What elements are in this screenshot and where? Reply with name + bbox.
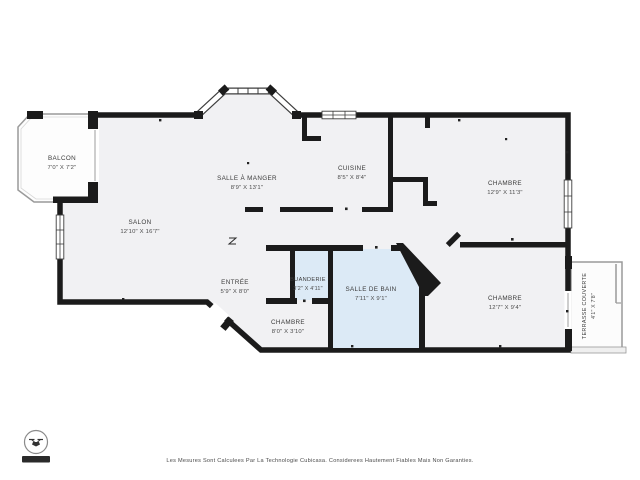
room-dims-chambre-2: 8'0" X 3'10" xyxy=(272,329,304,335)
room-dims-chambre-3: 12'7" X 9'4" xyxy=(489,305,521,311)
room-label-salle-de-bain: SALLE DE BAIN xyxy=(345,286,396,293)
window-top-wall xyxy=(322,111,356,119)
room-dims-balcon: 7'0" X 7'2" xyxy=(48,165,77,171)
room-dims-salon: 12'10" X 16'7" xyxy=(120,229,159,235)
room-dims-salle-a-manger: 8'9" X 13'1" xyxy=(231,185,263,191)
room-label-cuisine: CUISINE xyxy=(338,165,366,172)
disclaimer-text: Les Mesures Sont Calculees Par La Techno… xyxy=(0,458,640,464)
room-label-salle-a-manger: SALLE À MANGER xyxy=(217,173,277,182)
room-label-chambre-2: CHAMBRE xyxy=(271,319,305,326)
room-dims-cuisine: 8'5" X 8'4" xyxy=(338,175,367,181)
terrace-outline xyxy=(571,262,626,353)
window-left-wall xyxy=(56,215,64,259)
room-dims-salle-de-bain: 7'11" X 9'1" xyxy=(355,296,387,302)
room-label-entree: ENTRÉE xyxy=(221,277,249,286)
floorplan-page: BALCON 7'0" X 7'2" SALON 12'10" X 16'7" … xyxy=(0,0,640,480)
window-right-wall xyxy=(564,180,572,228)
room-label-chambre-3: CHAMBRE xyxy=(488,295,522,302)
room-dims-entree: 5'9" X 8'0" xyxy=(221,289,250,295)
room-label-terrasse: TERRASSE COUVERTE xyxy=(582,273,588,339)
room-label-buanderie: BUANDERIE xyxy=(290,277,326,283)
room-label-balcon: BALCON xyxy=(48,155,76,162)
balcony-door xyxy=(92,129,100,182)
room-label-chambre-1: CHAMBRE xyxy=(488,180,522,187)
room-dims-chambre-1: 12'9" X 11'3" xyxy=(487,190,522,196)
floorplan-canvas: BALCON 7'0" X 7'2" SALON 12'10" X 16'7" … xyxy=(0,0,640,480)
room-label-salon: SALON xyxy=(128,219,151,226)
room-dims-buanderie: 3'2" X 4'11" xyxy=(293,286,322,292)
room-dims-terrasse: 4'1" X 7'8" xyxy=(591,293,597,319)
